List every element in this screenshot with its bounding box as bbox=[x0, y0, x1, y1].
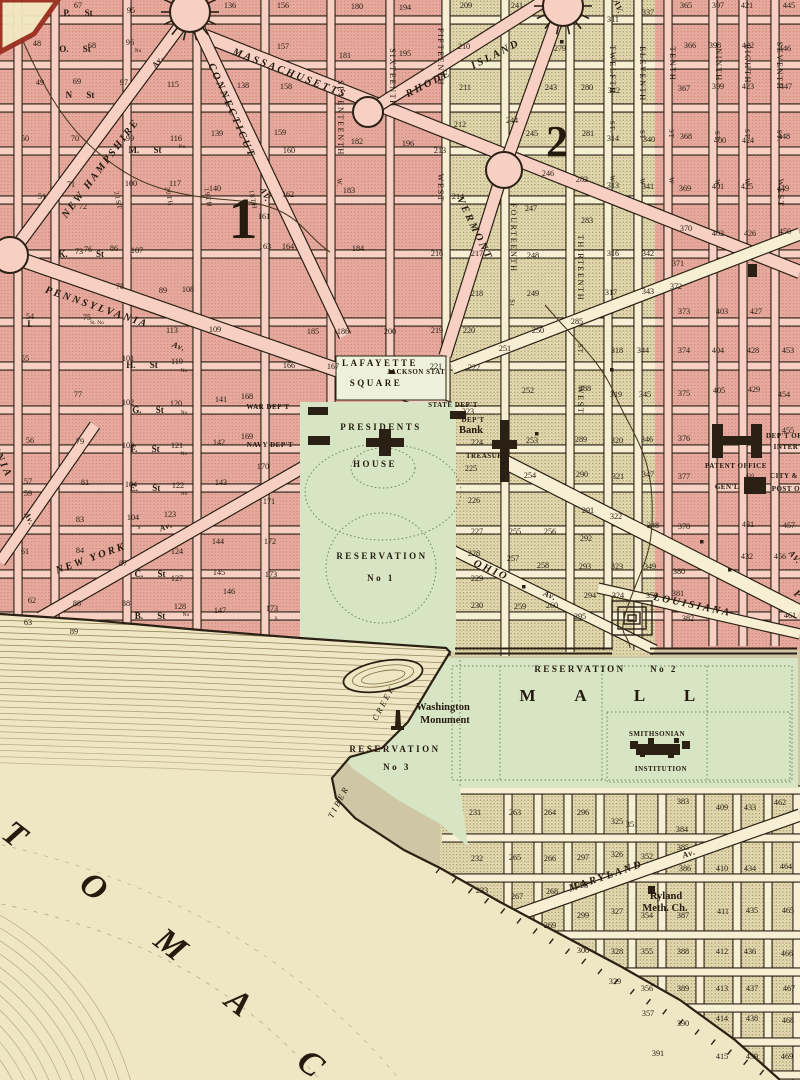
block-number: 325 bbox=[611, 817, 623, 826]
block-number: 136 bbox=[224, 1, 236, 10]
block-number: 462 bbox=[774, 798, 786, 807]
block-number: 250 bbox=[532, 326, 544, 335]
block-number: 223 bbox=[462, 407, 474, 416]
block-number: 372 bbox=[670, 282, 682, 291]
block-number: 368 bbox=[680, 132, 692, 141]
block-number: 450 bbox=[779, 227, 791, 236]
block-number: 96 bbox=[126, 38, 134, 47]
block-number: 68 bbox=[88, 41, 96, 50]
block-number: 374 bbox=[678, 346, 690, 355]
block-number: 181 bbox=[339, 51, 351, 60]
block-number: 249 bbox=[527, 289, 539, 298]
block-number: 56 bbox=[26, 436, 34, 445]
block-number: 117 bbox=[169, 179, 181, 188]
block-number: 351 bbox=[626, 820, 638, 829]
block-number: 141 bbox=[215, 395, 227, 404]
block-number: 104 bbox=[125, 480, 137, 489]
block-number: 281 bbox=[582, 129, 594, 138]
map-label: W bbox=[667, 177, 674, 184]
block-number: 78 bbox=[116, 282, 124, 291]
block-number: 185 bbox=[307, 327, 319, 336]
block-number: 380 bbox=[673, 567, 685, 576]
block-number: 298 bbox=[576, 881, 588, 890]
block-number: 348 bbox=[647, 521, 659, 530]
block-number: 282 bbox=[576, 175, 588, 184]
block-number: 466 bbox=[781, 949, 793, 958]
block-number: 67 bbox=[74, 1, 82, 10]
block-number: 454 bbox=[778, 390, 790, 399]
block-number: 124 bbox=[171, 547, 183, 556]
map-label: RESERVATION bbox=[336, 551, 427, 561]
block-number: 365 bbox=[680, 1, 692, 10]
block-number: 212 bbox=[454, 120, 466, 129]
block-number: 290 bbox=[576, 470, 588, 479]
map-label: No bbox=[181, 368, 188, 374]
block-number: 390 bbox=[677, 1019, 689, 1028]
block-number: 428 bbox=[747, 346, 759, 355]
map-label: NINTH bbox=[714, 48, 723, 81]
block-number: 89 bbox=[159, 286, 167, 295]
block-number: 83 bbox=[76, 515, 84, 524]
block-number: 222 bbox=[468, 363, 480, 372]
block-number: 258 bbox=[537, 561, 549, 570]
block-number: 409 bbox=[716, 803, 728, 812]
map-label: FIFTEENTH bbox=[436, 28, 445, 86]
block-number: 437 bbox=[746, 984, 758, 993]
block-number: 128 bbox=[174, 602, 186, 611]
map-label: INSTITUTION bbox=[635, 765, 687, 773]
map-label: No bbox=[135, 48, 142, 54]
block-number: 196 bbox=[402, 139, 414, 148]
block-number: 389 bbox=[677, 984, 689, 993]
block-number: 219 bbox=[431, 326, 443, 335]
block-number: 413 bbox=[716, 984, 728, 993]
block-number: 108 bbox=[182, 285, 194, 294]
block-number: 371 bbox=[672, 259, 684, 268]
block-number: 57 bbox=[24, 477, 32, 486]
block-number: 160 bbox=[283, 146, 295, 155]
washington-circle bbox=[0, 237, 28, 273]
block-number: 104 bbox=[127, 513, 139, 522]
block-number: 167 bbox=[327, 362, 339, 371]
block-number: 316 bbox=[607, 249, 619, 258]
block-number: 120 bbox=[170, 399, 182, 408]
block-number: 467 bbox=[783, 984, 795, 993]
block-number: 401 bbox=[712, 182, 724, 191]
map-label: PATENT OFFICE bbox=[705, 462, 767, 470]
block-number: 469 bbox=[781, 1052, 793, 1061]
block-number: 257 bbox=[507, 554, 519, 563]
block-number: 172 bbox=[264, 537, 276, 546]
block-number: 79 bbox=[76, 437, 84, 446]
block-number: 211 bbox=[459, 83, 471, 92]
block-number: 279 bbox=[554, 44, 566, 53]
block-number: 293 bbox=[579, 562, 591, 571]
map-label: DEP'T bbox=[461, 416, 484, 424]
block-number: 433 bbox=[744, 803, 756, 812]
map-label: F. St bbox=[130, 444, 159, 454]
map-label: SQUARE bbox=[350, 378, 403, 388]
block-number: 291 bbox=[582, 506, 594, 515]
block-number: 436 bbox=[744, 947, 756, 956]
block-number: 356 bbox=[641, 984, 653, 993]
block-number: 259 bbox=[514, 602, 526, 611]
block-number: 159 bbox=[274, 128, 286, 137]
map-label: W. bbox=[335, 178, 342, 188]
map-label: Bank bbox=[459, 425, 483, 436]
block-number: 427 bbox=[750, 307, 762, 316]
map-label: RESERVATION bbox=[349, 744, 440, 754]
block-number: 410 bbox=[716, 864, 728, 873]
block-number: 403 bbox=[716, 307, 728, 316]
map-label: L bbox=[634, 686, 646, 705]
map-label: TENTH bbox=[668, 47, 677, 82]
block-number: 349 bbox=[644, 562, 656, 571]
block-number: 299 bbox=[577, 911, 589, 920]
thomas-circle bbox=[486, 152, 522, 188]
map-label: A bbox=[574, 686, 587, 705]
block-number: 386 bbox=[679, 864, 691, 873]
block-number: 194 bbox=[399, 3, 411, 12]
block-number: 320 bbox=[611, 436, 623, 445]
map-label: S bbox=[274, 616, 277, 622]
block-number: 391 bbox=[652, 1049, 664, 1058]
block-number: 373 bbox=[678, 307, 690, 316]
block-number: 48 bbox=[33, 39, 41, 48]
block-number: 384 bbox=[676, 825, 688, 834]
block-number: 95 bbox=[127, 6, 135, 15]
block-number: 256 bbox=[544, 527, 556, 536]
block-number: 109 bbox=[209, 325, 221, 334]
block-number: 288 bbox=[579, 384, 591, 393]
map-label: HOUSE bbox=[353, 459, 397, 469]
block-number: 71 bbox=[67, 180, 75, 189]
block-number: 382 bbox=[682, 614, 694, 623]
block-number: 116 bbox=[170, 134, 182, 143]
block-number: 241 bbox=[511, 1, 523, 10]
block-number: 213 bbox=[434, 146, 446, 155]
block-number: 329 bbox=[609, 977, 621, 986]
block-number: 313 bbox=[607, 181, 619, 190]
block-number: 347 bbox=[642, 470, 654, 479]
block-number: 232 bbox=[471, 854, 483, 863]
block-number: 186 bbox=[337, 327, 349, 336]
block-number: 432 bbox=[741, 552, 753, 561]
block-number: 163 bbox=[259, 242, 271, 251]
historic-dc-map: NEW HAMPSHIREAv.CONNECTICUTAV.MASSACHUSE… bbox=[0, 0, 800, 1080]
block-number: 352 bbox=[641, 852, 653, 861]
block-number: 297 bbox=[577, 853, 589, 862]
map-label: No bbox=[181, 451, 188, 457]
block-number: 54 bbox=[26, 312, 34, 321]
block-number: 164 bbox=[282, 242, 294, 251]
block-number: 446 bbox=[779, 44, 791, 53]
block-number: 447 bbox=[780, 82, 792, 91]
block-number: 50 bbox=[21, 134, 29, 143]
block-number: 180 bbox=[351, 2, 363, 11]
map-label: M bbox=[519, 686, 536, 705]
map-label: St bbox=[508, 299, 515, 307]
block-number: 139 bbox=[211, 129, 223, 138]
block-number: 397 bbox=[712, 1, 724, 10]
map-label: WEST bbox=[436, 174, 445, 203]
map-label: No 1 bbox=[367, 573, 395, 583]
block-number: 383 bbox=[677, 797, 689, 806]
block-number: 445 bbox=[783, 1, 795, 10]
block-number: 77 bbox=[74, 390, 82, 399]
block-number: 369 bbox=[679, 184, 691, 193]
block-number: 59 bbox=[24, 489, 32, 498]
block-number: 321 bbox=[612, 472, 624, 481]
block-number: 341 bbox=[642, 182, 654, 191]
block-number: 367 bbox=[678, 84, 690, 93]
block-number: 292 bbox=[580, 534, 592, 543]
block-number: 88 bbox=[73, 599, 81, 608]
block-number: 209 bbox=[460, 1, 472, 10]
block-number: 438 bbox=[746, 1014, 758, 1023]
block-number: 145 bbox=[213, 568, 225, 577]
map-label: RESERVATION bbox=[534, 664, 625, 674]
map-label: THIRTEENTH bbox=[576, 235, 585, 301]
block-number: 429 bbox=[748, 385, 760, 394]
block-number: 252 bbox=[522, 386, 534, 395]
block-number: 280 bbox=[581, 83, 593, 92]
block-number: 267 bbox=[511, 892, 523, 901]
block-number: 388 bbox=[677, 947, 689, 956]
map-label: K. bbox=[58, 249, 67, 259]
block-number: 122 bbox=[172, 481, 184, 490]
block-number: 162 bbox=[282, 190, 294, 199]
map-label: FOURTEENTH bbox=[509, 203, 518, 272]
block-number: 378 bbox=[678, 522, 690, 531]
block-number: 457 bbox=[783, 521, 795, 530]
block-number: 319 bbox=[610, 390, 622, 399]
block-number: 144 bbox=[212, 537, 224, 546]
block-number: 146 bbox=[223, 587, 235, 596]
block-number: 170 bbox=[257, 462, 269, 471]
map-label: ST bbox=[667, 129, 674, 139]
block-number: 312 bbox=[608, 86, 620, 95]
block-number: 143 bbox=[215, 478, 227, 487]
block-number: 63 bbox=[24, 618, 32, 627]
map-label: 430 bbox=[746, 473, 755, 479]
block-number: 346 bbox=[641, 435, 653, 444]
block-number: 326 bbox=[611, 850, 623, 859]
block-number: 89 bbox=[70, 627, 78, 636]
block-number: 337 bbox=[642, 8, 654, 17]
block-number: 214 bbox=[452, 192, 464, 201]
block-number: 103 bbox=[122, 441, 134, 450]
block-number: 435 bbox=[746, 906, 758, 915]
block-number: 224 bbox=[471, 438, 483, 447]
block-number: 264 bbox=[544, 808, 556, 817]
block-number: 140 bbox=[209, 184, 221, 193]
block-number: 421 bbox=[741, 1, 753, 10]
block-number: 210 bbox=[458, 42, 470, 51]
block-number: 248 bbox=[527, 251, 539, 260]
block-number: 402 bbox=[712, 229, 724, 238]
block-number: 357 bbox=[642, 1009, 654, 1018]
map-label: SIXTEENTH bbox=[388, 48, 397, 107]
block-number: 434 bbox=[744, 864, 756, 873]
block-number: 225 bbox=[465, 464, 477, 473]
block-number: 171 bbox=[263, 497, 275, 506]
block-number: 448 bbox=[778, 132, 790, 141]
block-number: 55 bbox=[21, 354, 29, 363]
block-number: 166 bbox=[283, 361, 295, 370]
block-number: 200 bbox=[384, 327, 396, 336]
block-number: 123 bbox=[164, 510, 176, 519]
block-number: 102 bbox=[122, 398, 134, 407]
block-number: 246 bbox=[542, 169, 554, 178]
block-number: 142 bbox=[213, 438, 225, 447]
block-number: 218 bbox=[471, 289, 483, 298]
block-number: 229 bbox=[471, 574, 483, 583]
block-number: 255 bbox=[509, 527, 521, 536]
map-label: S bbox=[137, 525, 140, 531]
block-number: 405 bbox=[713, 386, 725, 395]
map-canvas: NEW HAMPSHIREAv.CONNECTICUTAV.MASSACHUSE… bbox=[0, 0, 800, 1080]
map-label: G. St bbox=[132, 405, 164, 415]
map-label: L bbox=[684, 686, 696, 705]
war-dept-building bbox=[308, 407, 328, 415]
block-number: 296 bbox=[577, 808, 589, 817]
block-number: 87 bbox=[119, 559, 127, 568]
map-label: No bbox=[181, 410, 188, 416]
block-number: 414 bbox=[716, 1014, 728, 1023]
map-label: Monument bbox=[420, 715, 470, 726]
block-number: 70 bbox=[71, 134, 79, 143]
map-label: No bbox=[181, 491, 188, 497]
block-number: 377 bbox=[678, 472, 690, 481]
map-label: 2 bbox=[546, 117, 568, 166]
block-number: 465 bbox=[782, 906, 794, 915]
block-number: 342 bbox=[642, 249, 654, 258]
map-label: TREASURY bbox=[466, 452, 508, 460]
block-number: 385 bbox=[677, 843, 689, 852]
block-number: 62 bbox=[28, 596, 36, 605]
map-label: Ryland bbox=[650, 891, 682, 902]
block-number: 412 bbox=[716, 947, 728, 956]
block-number: 127 bbox=[171, 574, 183, 583]
block-number: 253 bbox=[526, 436, 538, 445]
block-number: 233 bbox=[476, 886, 488, 895]
block-number: 75 bbox=[83, 313, 91, 322]
block-number: 81 bbox=[81, 478, 89, 487]
block-number: 216 bbox=[431, 249, 443, 258]
block-number: 100 bbox=[125, 179, 137, 188]
block-number: 119 bbox=[171, 357, 183, 366]
block-number: 61 bbox=[21, 547, 29, 556]
block-number: 375 bbox=[678, 389, 690, 398]
block-number: 69 bbox=[73, 77, 81, 86]
block-number: 76 bbox=[84, 245, 92, 254]
block-number: 323 bbox=[611, 562, 623, 571]
block-number: 464 bbox=[780, 862, 792, 871]
block-number: 317 bbox=[605, 288, 617, 297]
map-label: SEVENTEENTH bbox=[336, 80, 345, 156]
block-number: 49 bbox=[36, 78, 44, 87]
block-number: 345 bbox=[639, 390, 651, 399]
map-label: No bbox=[183, 612, 190, 618]
block-number: 115 bbox=[167, 80, 179, 89]
map-label: No 3 bbox=[383, 762, 411, 772]
navy-dept-building bbox=[308, 436, 330, 445]
block-number: 422 bbox=[742, 41, 754, 50]
block-number: 220 bbox=[463, 326, 475, 335]
map-label: ST. bbox=[576, 344, 583, 356]
block-number: 289 bbox=[575, 435, 587, 444]
map-label: INTER'R bbox=[774, 443, 800, 451]
map-label: WAR DEP'T bbox=[246, 403, 289, 411]
block-number: 455 bbox=[782, 426, 794, 435]
block-number: 453 bbox=[782, 346, 794, 355]
block-number: 398 bbox=[709, 41, 721, 50]
block-number: 381 bbox=[672, 589, 684, 598]
map-label: O. St bbox=[59, 44, 91, 54]
block-number: 247 bbox=[525, 204, 537, 213]
block-number: 51 bbox=[38, 192, 46, 201]
map-label: No bbox=[179, 144, 186, 150]
block-number: 423 bbox=[742, 82, 754, 91]
scott-circle bbox=[353, 97, 383, 127]
block-number: 121 bbox=[171, 441, 183, 450]
map-label: PRESIDENTS bbox=[340, 422, 422, 432]
block-number: 265 bbox=[509, 853, 521, 862]
block-number: 169 bbox=[241, 432, 253, 441]
block-number: 251 bbox=[499, 344, 511, 353]
block-number: 195 bbox=[399, 49, 411, 58]
block-number: 425 bbox=[741, 182, 753, 191]
map-label: St. No bbox=[90, 320, 104, 326]
block-number: 107 bbox=[131, 246, 143, 255]
block-number: 88 bbox=[122, 599, 130, 608]
block-number: 230 bbox=[471, 601, 483, 610]
block-number: 468 bbox=[782, 1016, 794, 1025]
map-label: CITY & bbox=[770, 472, 798, 480]
block-number: 461 bbox=[784, 611, 796, 620]
block-number: 226 bbox=[468, 496, 480, 505]
block-number: 245 bbox=[526, 129, 538, 138]
block-number: 268 bbox=[546, 887, 558, 896]
block-number: 300 bbox=[577, 946, 589, 955]
block-number: 183 bbox=[343, 186, 355, 195]
block-number: 113 bbox=[166, 326, 178, 335]
map-label: Washington bbox=[416, 702, 470, 713]
block-number: 243 bbox=[545, 83, 557, 92]
block-number: 439 bbox=[746, 1052, 758, 1061]
map-label: WEST bbox=[776, 179, 785, 208]
block-number: 324 bbox=[612, 591, 624, 600]
block-number: 344 bbox=[637, 346, 649, 355]
block-number: 318 bbox=[611, 346, 623, 355]
block-number: 370 bbox=[680, 224, 692, 233]
block-number: 156 bbox=[277, 1, 289, 10]
block-number: 415 bbox=[716, 1052, 728, 1061]
map-label: SMITHSONIAN bbox=[629, 730, 685, 738]
map-label: ST. bbox=[608, 121, 615, 133]
block-number: 354 bbox=[641, 911, 653, 920]
block-number: 231 bbox=[469, 808, 481, 817]
block-number: 228 bbox=[468, 549, 480, 558]
block-number: 400 bbox=[714, 136, 726, 145]
block-number: 340 bbox=[643, 135, 655, 144]
block-number: 73 bbox=[75, 247, 83, 256]
block-number: 399 bbox=[712, 82, 724, 91]
map-label: N St bbox=[66, 90, 95, 100]
northern-market-building bbox=[748, 264, 757, 277]
map-label: C. St bbox=[134, 569, 165, 579]
